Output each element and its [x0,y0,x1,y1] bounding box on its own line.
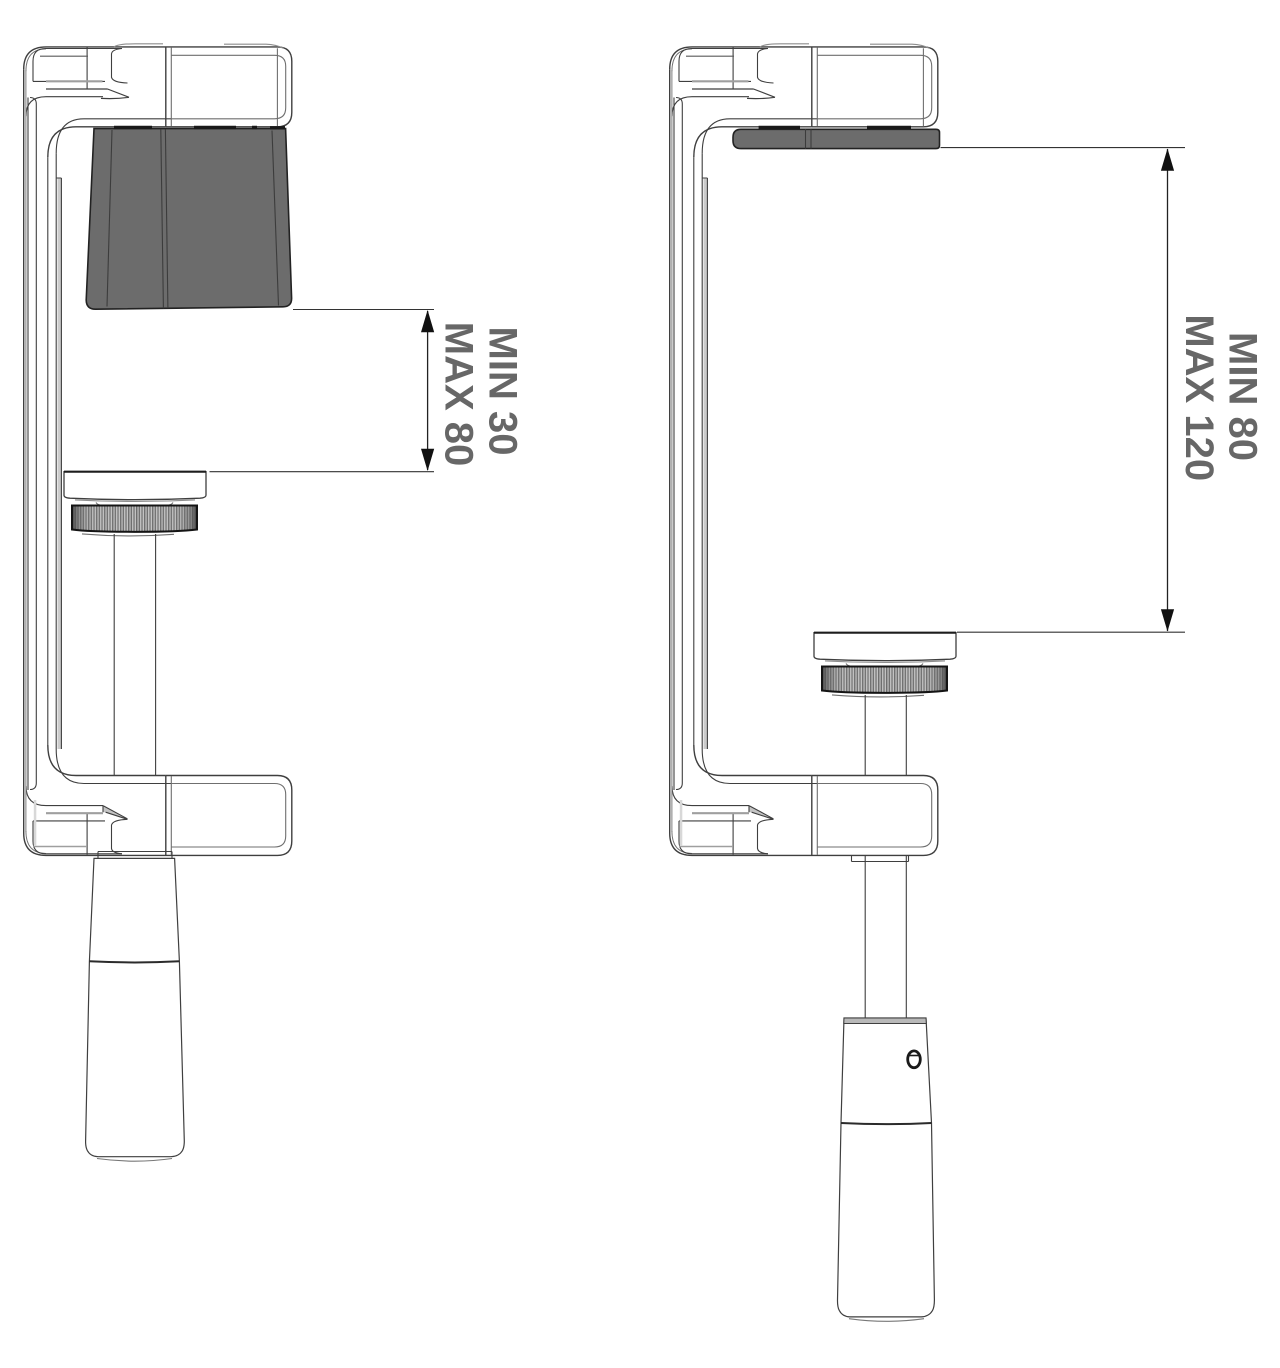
svg-text:MAX 80: MAX 80 [437,322,481,467]
svg-text:MAX 120: MAX 120 [1177,314,1221,481]
svg-text:MIN 80: MIN 80 [1221,332,1265,461]
svg-text:MIN 30: MIN 30 [481,327,525,456]
